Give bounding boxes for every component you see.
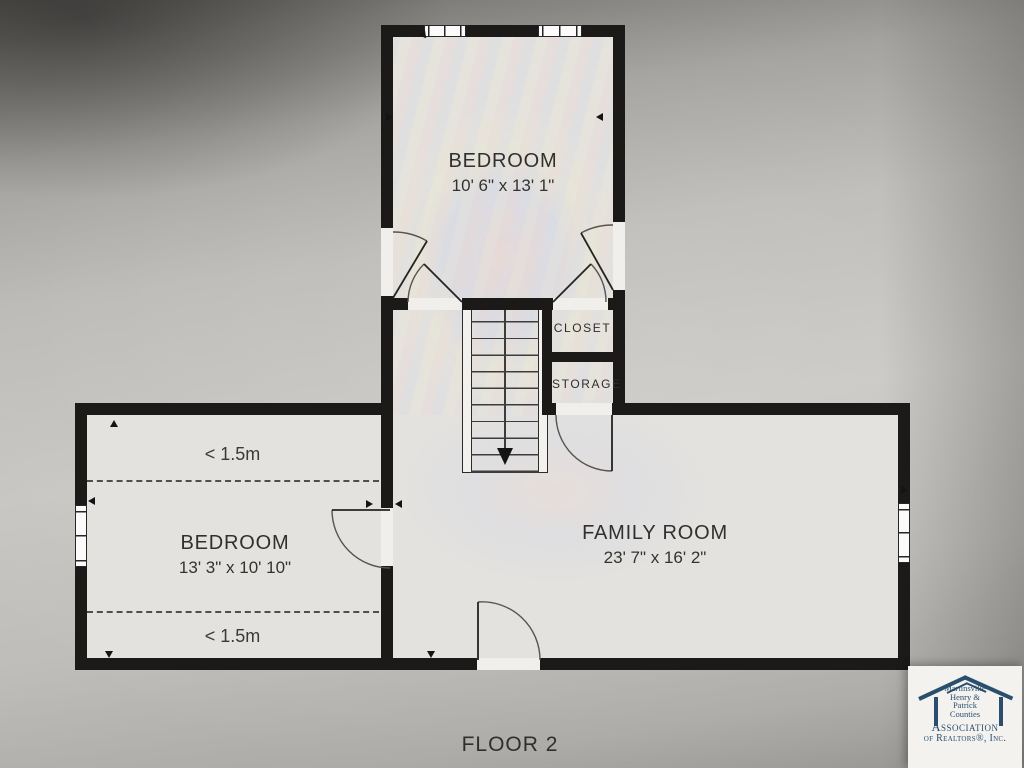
wall	[613, 25, 625, 222]
low-ceiling-label-top: < 1.5m	[130, 444, 335, 465]
door-swing	[550, 410, 618, 478]
window	[898, 503, 910, 563]
realtor-association-logo-text: Martinsville Henry & Patrick Counties As…	[908, 684, 1022, 744]
floor-plan-photo: BEDROOM 10' 6" x 13' 1" BEDROOM 13' 3" x…	[0, 0, 1024, 768]
floor-plan: BEDROOM 10' 6" x 13' 1" BEDROOM 13' 3" x…	[0, 0, 1024, 768]
stair-direction-line	[504, 306, 506, 450]
wall	[552, 352, 625, 362]
wall	[381, 566, 393, 658]
wall	[381, 296, 393, 403]
wall-marker	[105, 651, 113, 658]
window	[424, 25, 466, 37]
low-ceiling-dashed-line	[87, 611, 379, 613]
wall-marker	[427, 651, 435, 658]
wall-marker	[596, 113, 603, 121]
wall-marker	[386, 113, 393, 121]
wall	[381, 415, 393, 508]
room-dims: 10' 6" x 13' 1"	[393, 176, 613, 196]
window	[75, 505, 87, 567]
room-dims: 13' 3" x 10' 10"	[110, 558, 360, 578]
room-label-bedroom-left: BEDROOM 13' 3" x 10' 10"	[110, 532, 360, 578]
wall	[381, 25, 625, 37]
door-swing	[473, 596, 545, 666]
room-label-storage: STORAGE	[552, 377, 613, 391]
room-label-family-room: FAMILY ROOM 23' 7" x 16' 2"	[505, 522, 805, 568]
wall	[75, 403, 393, 415]
wall-marker	[366, 500, 373, 508]
logo-location-line: Counties	[908, 710, 1022, 719]
wall	[381, 25, 393, 228]
room-label-closet: CLOSET	[552, 321, 613, 335]
wall	[542, 298, 552, 415]
wall-marker	[395, 500, 402, 508]
low-ceiling-dashed-line	[87, 480, 379, 482]
room-label-bedroom-top: BEDROOM 10' 6" x 13' 1"	[393, 150, 613, 196]
room-name: FAMILY ROOM	[505, 522, 805, 545]
door-swing	[405, 258, 467, 306]
floor-title: FLOOR 2	[445, 733, 575, 757]
window	[538, 25, 582, 37]
room-dims: 23' 7" x 16' 2"	[505, 548, 805, 568]
wall	[462, 298, 553, 310]
wall-marker	[901, 486, 908, 494]
wall-marker	[88, 497, 95, 505]
door-swing	[550, 258, 612, 306]
room-name: BEDROOM	[110, 532, 360, 555]
wall	[75, 658, 477, 670]
wall-marker	[110, 420, 118, 427]
wall	[540, 658, 910, 670]
room-name: BEDROOM	[393, 150, 613, 173]
stair-down-arrow-icon	[497, 448, 513, 465]
logo-realtors-line: of Realtors®, Inc.	[908, 734, 1022, 744]
low-ceiling-label-bottom: < 1.5m	[130, 626, 335, 647]
wall	[612, 403, 910, 415]
